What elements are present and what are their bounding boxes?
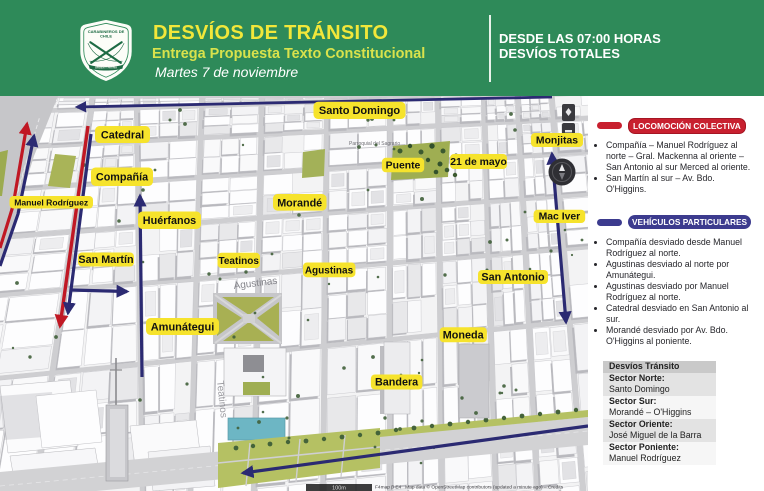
svg-text:Manuel Rodríguez: Manuel Rodríguez: [14, 198, 88, 208]
svg-text:Huérfanos: Huérfanos: [143, 215, 196, 227]
svg-text:San Antonio: San Antonio: [481, 271, 545, 283]
svg-text:100m: 100m: [332, 486, 346, 491]
svg-text:Morandé: Morandé: [277, 197, 322, 209]
svg-text:Amunátegui: Amunátegui: [151, 322, 215, 334]
svg-text:CHILE: CHILE: [100, 34, 112, 39]
svg-text:Mac Iver: Mac Iver: [539, 212, 581, 223]
svg-text:Monjitas: Monjitas: [536, 135, 578, 146]
svg-text:San Martín: San Martín: [78, 254, 133, 266]
svg-text:Moneda: Moneda: [443, 329, 485, 341]
svg-text:Agustinas: Agustinas: [305, 265, 354, 276]
svg-text:Parroquial del Sagrario: Parroquial del Sagrario: [349, 141, 400, 147]
svg-text:Puente: Puente: [386, 161, 421, 172]
svg-text:Compañía: Compañía: [96, 172, 149, 184]
svg-text:ORDEN Y PATRIA: ORDEN Y PATRIA: [95, 65, 117, 69]
svg-text:21 de mayo: 21 de mayo: [450, 157, 507, 168]
svg-text:Catedral: Catedral: [101, 129, 144, 141]
svg-text:F4map β E4 Map data © OpenSt: F4map β E4 Map data © OpenStreetMap cont…: [375, 484, 564, 491]
svg-text:Bandera: Bandera: [375, 377, 419, 389]
svg-text:Teatinos: Teatinos: [219, 256, 260, 267]
svg-text:Santo Domingo: Santo Domingo: [319, 105, 401, 117]
